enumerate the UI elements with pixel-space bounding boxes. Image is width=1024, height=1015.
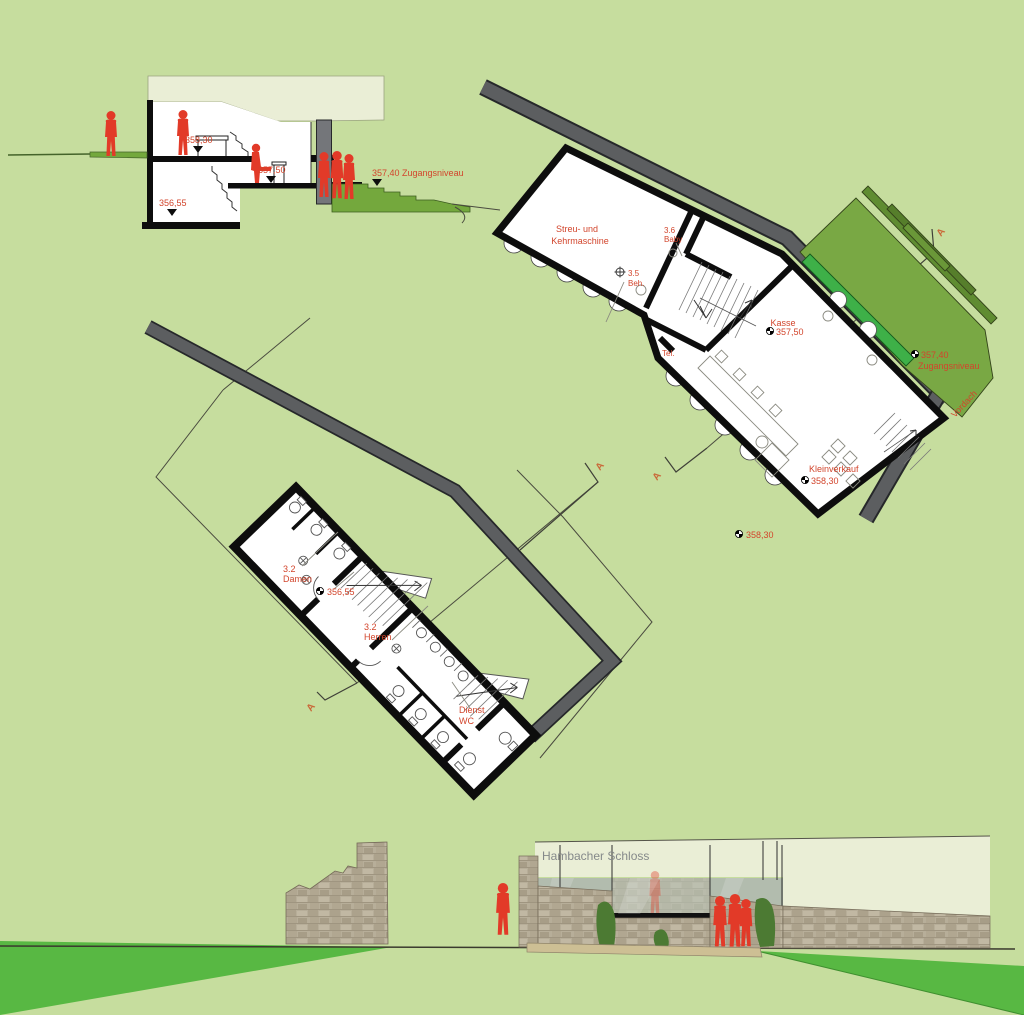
ground-line-left (8, 154, 90, 155)
section-level-upper: 358,30 (185, 135, 213, 145)
outside-level: 358,30 (746, 530, 774, 540)
section-level-lower: 356,55 (159, 198, 187, 208)
room-beh-2: Beh. (628, 279, 644, 288)
dienst-2: WC (459, 716, 474, 726)
dienst-1: Dienst (459, 705, 485, 715)
room-beh-1: 3.5 (628, 269, 640, 278)
elevation-title: Hambacher Schloss (542, 849, 649, 863)
entry-level-2: Zugangsniveau (918, 361, 980, 371)
architectural-drawing-sheet: Hambacher Schloss (0, 0, 1024, 1015)
room-baby-1: 3.6 (664, 226, 676, 235)
section-interior-lower (152, 162, 240, 222)
room-streu-2: Kehrmaschine (551, 236, 609, 246)
damen-2: Damen (283, 574, 312, 584)
room-streu-1: Streu- und (556, 224, 598, 234)
herren-1: 3.2 (364, 622, 377, 632)
room-baby-2: Baby (664, 235, 682, 244)
kasse-2: 357,50 (776, 327, 804, 337)
herren-2: Herren (364, 632, 392, 642)
section-level-mid: 357,50 (258, 165, 286, 175)
kleinverkauf-2: 358,30 (811, 476, 839, 486)
tel-label: Tel. (662, 349, 674, 358)
ground-strip-left (90, 152, 147, 158)
section-level-entry: 357,40 Zugangsniveau (372, 168, 464, 178)
damen-1: 3.2 (283, 564, 296, 574)
lower-level: 356,55 (327, 587, 355, 597)
entry-level-1: 357,40 (921, 350, 949, 360)
stone-pillar-left (519, 856, 538, 947)
kleinverkauf-1: Kleinverkauf (809, 464, 859, 474)
